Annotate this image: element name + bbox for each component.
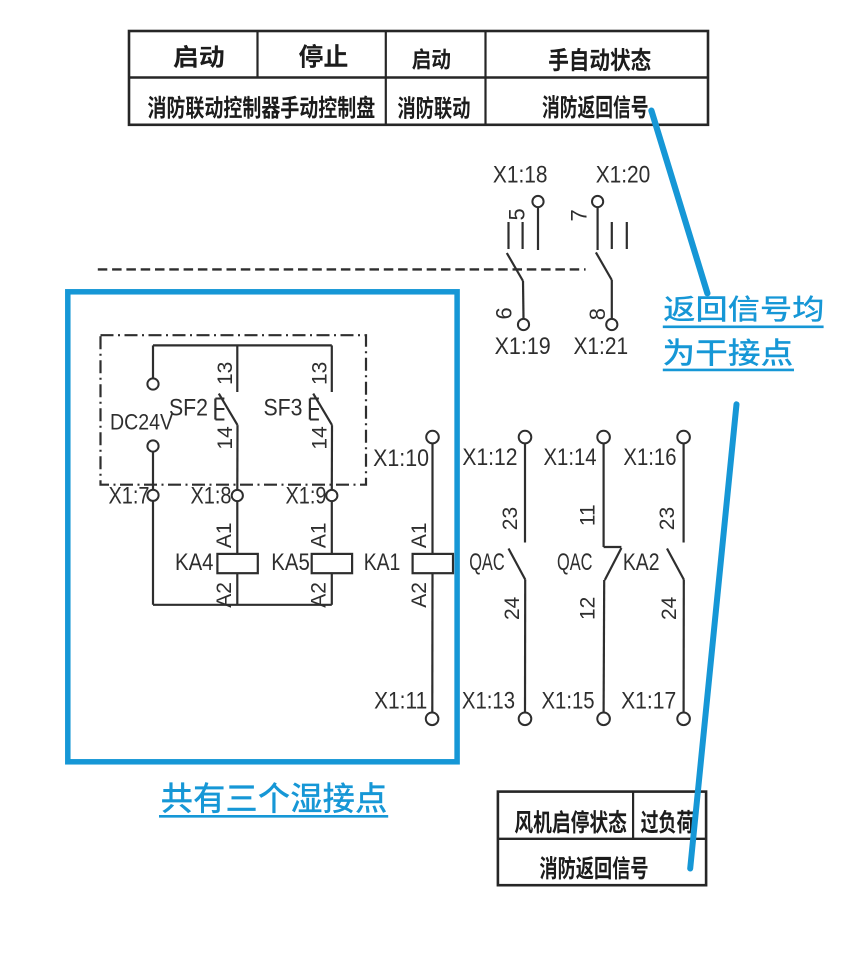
svg-text:X1:14: X1:14 <box>544 444 597 471</box>
svg-text:13: 13 <box>309 362 332 385</box>
svg-text:5: 5 <box>505 208 530 220</box>
svg-text:11: 11 <box>577 504 600 526</box>
svg-text:X1:9: X1:9 <box>286 482 327 509</box>
svg-text:SF2: SF2 <box>169 395 208 422</box>
svg-text:13: 13 <box>214 362 237 385</box>
svg-text:23: 23 <box>499 507 522 530</box>
svg-text:24: 24 <box>658 596 681 620</box>
svg-text:X1:17: X1:17 <box>621 688 676 715</box>
svg-text:X1:16: X1:16 <box>623 444 676 471</box>
svg-text:A2: A2 <box>408 582 431 608</box>
svg-text:X1:18: X1:18 <box>493 161 548 188</box>
svg-text:X1:15: X1:15 <box>542 688 595 715</box>
svg-text:X1:7: X1:7 <box>109 482 150 509</box>
svg-text:8: 8 <box>585 308 610 320</box>
svg-text:12: 12 <box>577 597 600 620</box>
svg-text:A1: A1 <box>408 522 431 548</box>
svg-text:24: 24 <box>501 596 524 620</box>
svg-text:X1:21: X1:21 <box>574 333 629 360</box>
svg-text:X1:19: X1:19 <box>495 333 551 360</box>
svg-text:7: 7 <box>567 209 592 221</box>
svg-text:KA1: KA1 <box>364 549 401 576</box>
svg-text:DC24V: DC24V <box>110 410 173 435</box>
svg-text:X1:12: X1:12 <box>462 444 517 471</box>
svg-text:KA2: KA2 <box>623 549 660 576</box>
svg-text:X1:8: X1:8 <box>191 482 232 509</box>
svg-text:A1: A1 <box>308 522 331 548</box>
svg-text:QAC: QAC <box>469 549 505 576</box>
svg-text:QAC: QAC <box>557 549 593 576</box>
svg-text:14: 14 <box>214 426 237 450</box>
svg-text:A2: A2 <box>308 582 331 608</box>
svg-text:14: 14 <box>309 426 332 450</box>
svg-text:X1:11: X1:11 <box>374 688 427 715</box>
svg-text:A1: A1 <box>213 522 236 548</box>
svg-text:X1:20: X1:20 <box>596 161 651 188</box>
svg-text:23: 23 <box>656 507 679 530</box>
svg-text:KA5: KA5 <box>271 549 310 576</box>
svg-text:A2: A2 <box>213 582 236 608</box>
svg-text:X1:10: X1:10 <box>373 445 429 472</box>
svg-text:SF3: SF3 <box>264 395 303 422</box>
svg-text:X1:13: X1:13 <box>462 688 515 715</box>
svg-text:6: 6 <box>492 307 517 319</box>
svg-text:KA4: KA4 <box>175 549 214 576</box>
